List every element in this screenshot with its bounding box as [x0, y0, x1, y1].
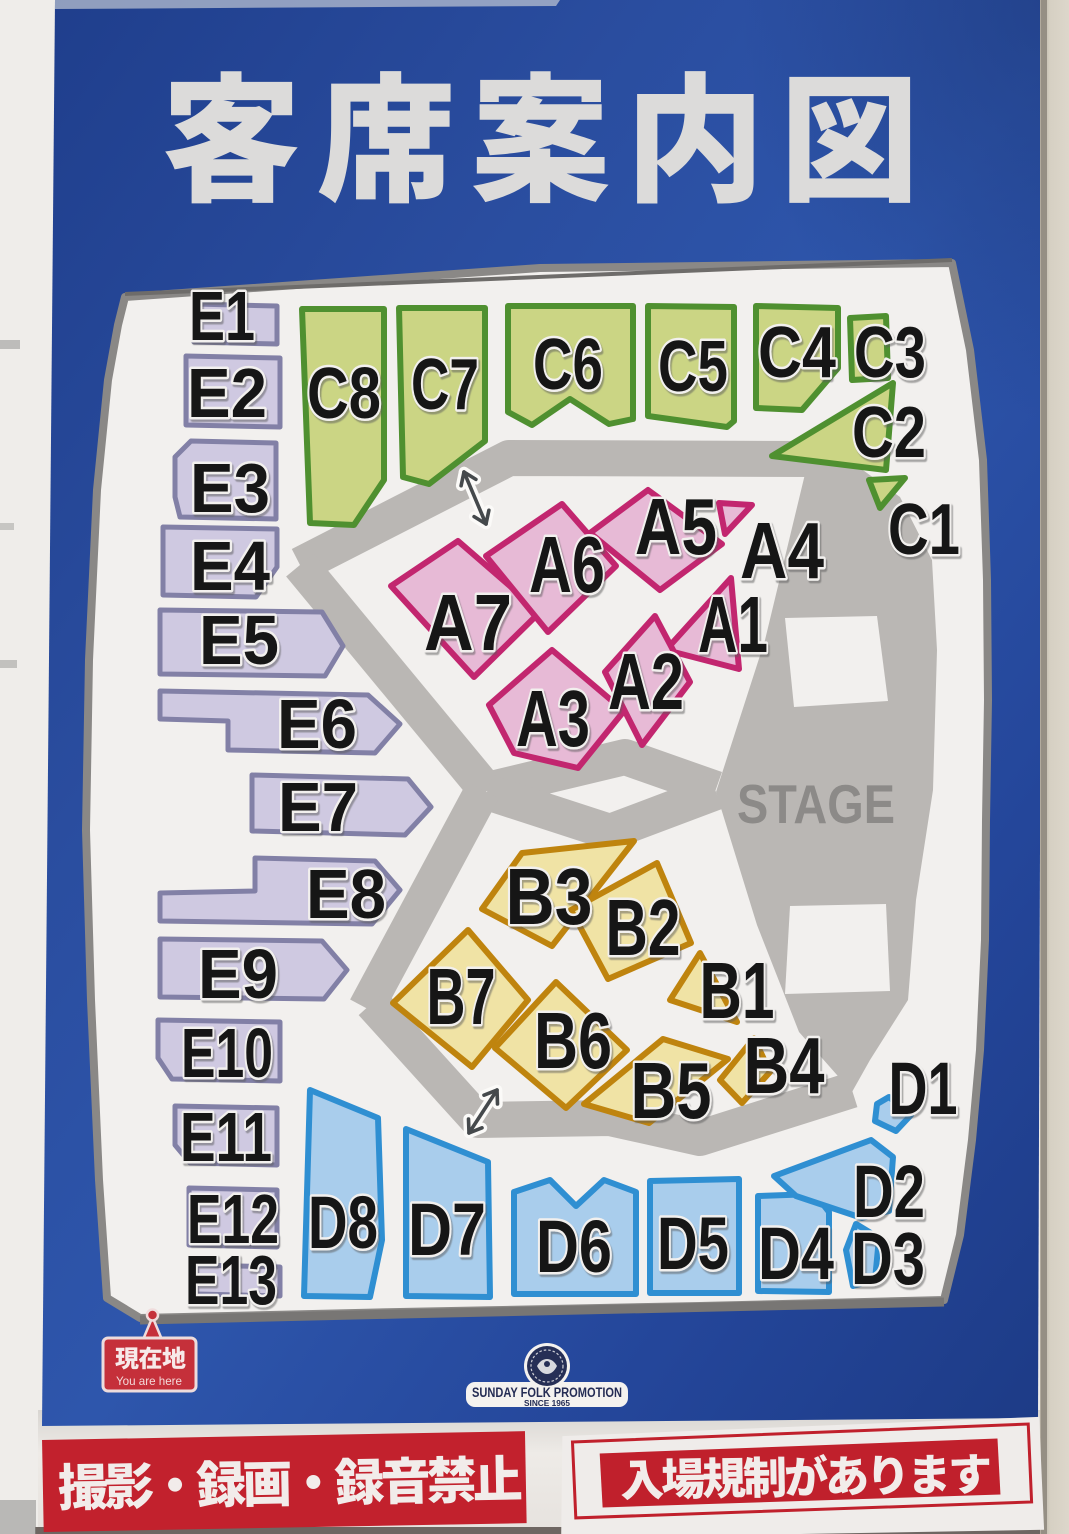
svg-text:D4: D4: [758, 1212, 834, 1295]
svg-text:C2: C2: [852, 393, 926, 473]
svg-text:C6: C6: [533, 325, 603, 405]
svg-text:E7: E7: [278, 768, 358, 846]
svg-text:B6: B6: [534, 996, 612, 1085]
svg-text:D8: D8: [308, 1181, 378, 1264]
svg-text:E9: E9: [198, 935, 278, 1013]
svg-text:C8: C8: [307, 354, 381, 434]
svg-text:SINCE 1965: SINCE 1965: [524, 1399, 571, 1408]
svg-text:D5: D5: [657, 1202, 729, 1285]
svg-text:C4: C4: [758, 313, 836, 393]
svg-text:E1: E1: [189, 277, 255, 355]
svg-text:D6: D6: [536, 1205, 612, 1288]
svg-text:A5: A5: [635, 482, 717, 571]
svg-text:E10: E10: [181, 1014, 273, 1092]
svg-text:E5: E5: [199, 601, 279, 679]
svg-text:D2: D2: [853, 1150, 925, 1233]
svg-text:C7: C7: [411, 345, 479, 425]
svg-text:B4: B4: [744, 1021, 825, 1110]
svg-text:B5: B5: [631, 1046, 712, 1135]
svg-text:E3: E3: [190, 449, 270, 527]
svg-text:A3: A3: [516, 674, 590, 763]
svg-text:E2: E2: [187, 354, 267, 432]
svg-text:SUNDAY FOLK PROMOTION: SUNDAY FOLK PROMOTION: [472, 1385, 622, 1400]
svg-text:E4: E4: [190, 527, 270, 605]
svg-text:E8: E8: [306, 855, 386, 933]
svg-text:You are here: You are here: [116, 1374, 182, 1388]
svg-text:D7: D7: [408, 1188, 486, 1271]
svg-text:A6: A6: [529, 520, 605, 609]
svg-text:D1: D1: [889, 1047, 958, 1130]
svg-text:E13: E13: [185, 1241, 277, 1319]
svg-text:E6: E6: [277, 685, 357, 763]
svg-text:STAGE: STAGE: [737, 773, 895, 835]
svg-text:C5: C5: [658, 327, 728, 407]
svg-text:A2: A2: [608, 637, 684, 726]
svg-text:A1: A1: [698, 580, 768, 669]
svg-text:C1: C1: [888, 490, 960, 570]
svg-text:B7: B7: [427, 952, 496, 1041]
svg-text:B2: B2: [606, 883, 681, 972]
svg-text:A7: A7: [424, 578, 512, 667]
svg-text:B3: B3: [506, 852, 593, 941]
svg-text:E11: E11: [180, 1098, 272, 1176]
svg-text:C3: C3: [854, 313, 926, 393]
